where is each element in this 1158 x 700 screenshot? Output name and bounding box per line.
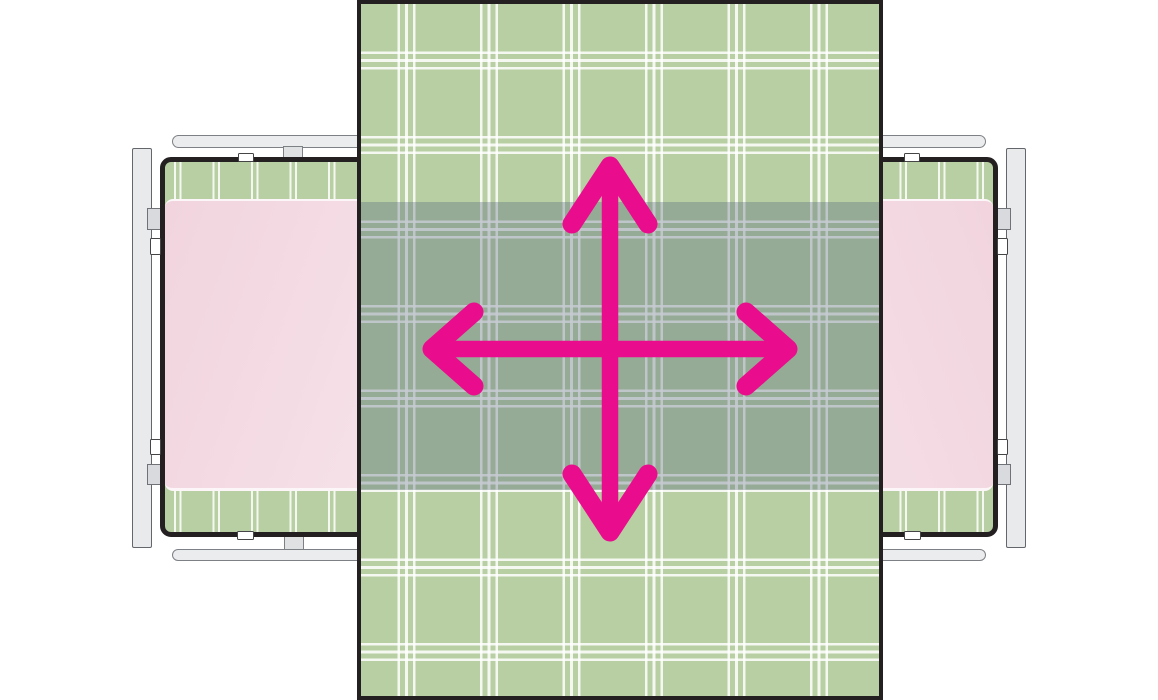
right-side-latch-lower xyxy=(997,439,1008,455)
right-side-latch-upper xyxy=(997,238,1008,255)
right-bottom-latch xyxy=(904,531,921,540)
right-side-clip-upper xyxy=(997,208,1011,230)
overlap-shaded-band xyxy=(361,202,879,490)
plaid-cloth xyxy=(357,0,883,700)
right-top-latch xyxy=(904,153,920,162)
right-side-clip-lower xyxy=(997,464,1011,485)
diagram-canvas xyxy=(0,0,1158,700)
